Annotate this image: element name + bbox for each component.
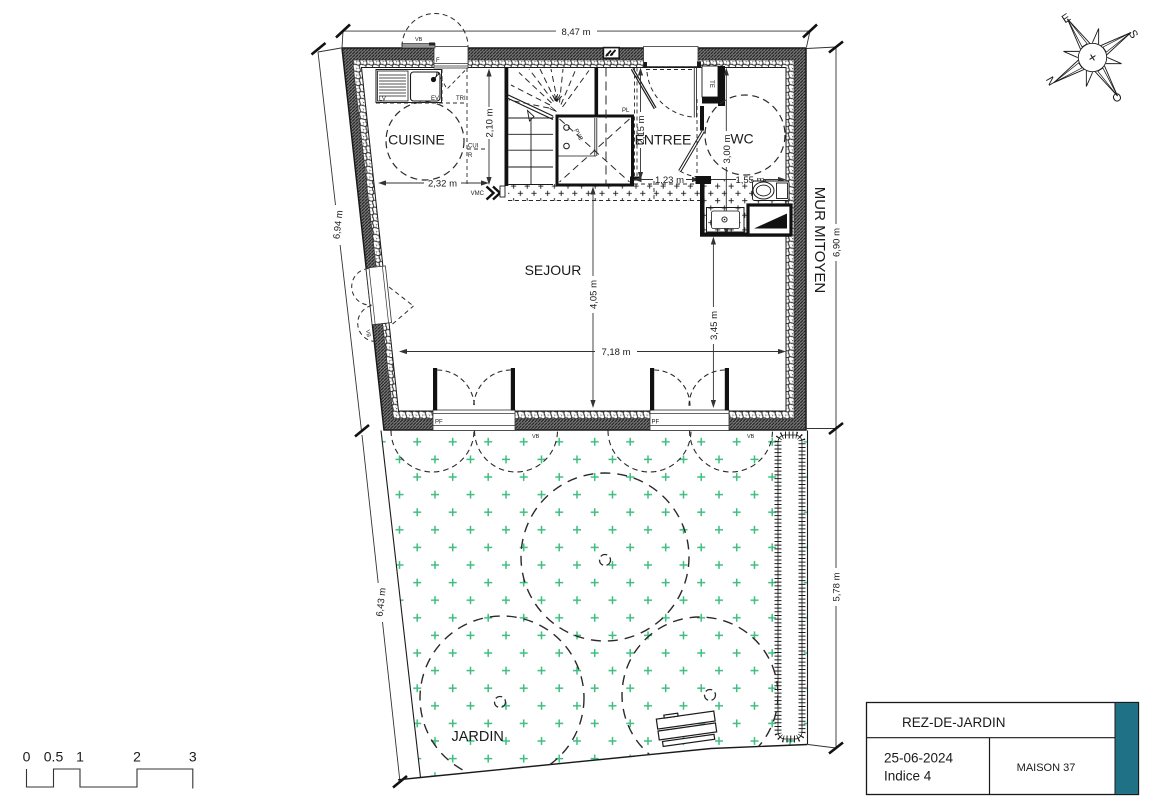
- svg-text:3: 3: [189, 749, 197, 765]
- svg-text:Indice 4: Indice 4: [884, 769, 932, 784]
- svg-text:PL: PL: [622, 108, 630, 114]
- svg-text:6,90 m: 6,90 m: [832, 228, 843, 257]
- svg-text:MUR MITOYEN: MUR MITOYEN: [811, 187, 828, 293]
- svg-text:8,47 m: 8,47 m: [561, 27, 590, 38]
- svg-text:7,18 m: 7,18 m: [601, 347, 630, 358]
- svg-text:PF: PF: [435, 420, 443, 426]
- svg-text:VMC: VMC: [471, 191, 485, 197]
- svg-text:TRI: TRI: [456, 96, 466, 102]
- svg-text:25-06-2024: 25-06-2024: [884, 751, 954, 766]
- svg-text:EV: EV: [431, 96, 439, 102]
- svg-text:WC: WC: [730, 131, 753, 147]
- svg-text:R: R: [468, 153, 473, 159]
- svg-text:F: F: [436, 58, 440, 64]
- svg-text:TE: TE: [708, 80, 714, 88]
- svg-text:0: 0: [23, 749, 31, 765]
- svg-text:0.5: 0.5: [44, 749, 64, 765]
- svg-text:1: 1: [76, 749, 84, 765]
- svg-text:REZ-DE-JARDIN: REZ-DE-JARDIN: [902, 715, 1006, 730]
- svg-text:P: P: [436, 73, 440, 79]
- svg-text:SEJOUR: SEJOUR: [525, 262, 582, 278]
- svg-text:3,00 m: 3,00 m: [722, 134, 733, 163]
- svg-text:CUISINE: CUISINE: [388, 132, 445, 148]
- svg-text:ENTREE: ENTREE: [635, 132, 692, 148]
- svg-text:VB: VB: [415, 37, 423, 43]
- svg-text:MAISON 37: MAISON 37: [1017, 762, 1076, 774]
- svg-text:1,23 m: 1,23 m: [655, 175, 684, 186]
- svg-text:2,32 m: 2,32 m: [428, 178, 457, 189]
- svg-text:LV: LV: [379, 97, 386, 103]
- svg-text:CUI: CUI: [468, 144, 479, 150]
- svg-text:4,05 m: 4,05 m: [589, 280, 600, 309]
- svg-text:2,10 m: 2,10 m: [485, 108, 496, 137]
- svg-text:VB: VB: [364, 329, 371, 338]
- svg-text:JARDIN: JARDIN: [452, 729, 504, 745]
- svg-text:5,78 m: 5,78 m: [832, 572, 843, 601]
- svg-text:PF: PF: [652, 420, 660, 426]
- svg-text:2: 2: [133, 749, 141, 765]
- svg-text:3,45 m: 3,45 m: [709, 311, 720, 340]
